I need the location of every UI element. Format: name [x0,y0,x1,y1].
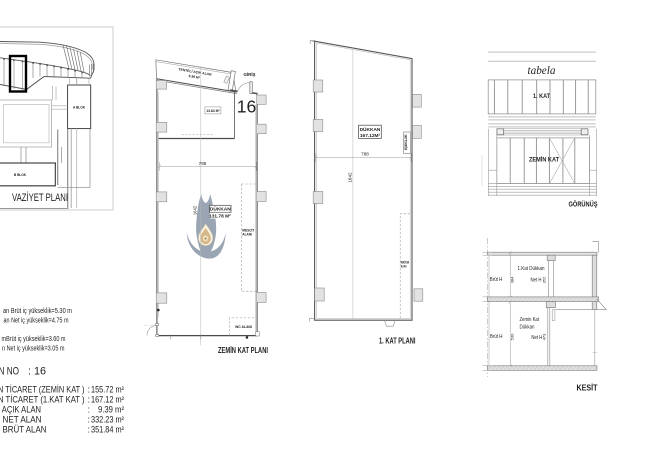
svg-text:N NO: N NO [0,366,19,378]
svg-text:ZEMİN KAT PLANI: ZEMİN KAT PLANI [218,345,268,355]
svg-text:352: 352 [542,276,547,283]
svg-text:İ AÇIK ALAN: İ AÇIK ALAN [0,405,41,415]
svg-text:788: 788 [361,152,369,157]
svg-text::: : [88,415,91,425]
svg-text:13.84 M²: 13.84 M² [206,109,220,113]
svg-text:ALANI: ALANI [401,264,407,268]
svg-text:1. KAT PLANI: 1. KAT PLANI [379,336,416,346]
svg-text:788: 788 [199,161,207,166]
svg-text:155.72 m²: 155.72 m² [91,385,124,395]
svg-text:DÜKKAN: DÜKKAN [210,206,231,213]
svg-text:167.12M²: 167.12M² [360,133,381,139]
svg-text:an Net iç yükseklik=4.75 m: an Net iç yükseklik=4.75 m [4,318,69,325]
svg-text:Brüt H: Brüt H [490,334,503,340]
svg-text::: : [88,425,91,435]
svg-text:N TİCARET (ZEMİN KAT ): N TİCARET (ZEMİN KAT ) [0,385,85,395]
svg-text:an Brüt iç yükseklik=5.30 m: an Brüt iç yükseklik=5.30 m [3,308,72,315]
svg-text:9.39 M²: 9.39 M² [188,74,201,80]
svg-text:351.84 m²: 351.84 m² [91,425,124,435]
svg-text:167.12 m²: 167.12 m² [91,395,124,405]
svg-text:DÜKKAN: DÜKKAN [360,126,381,133]
svg-text::: : [88,395,91,405]
svg-text:Net H: Net H [531,278,542,284]
svg-text:530: 530 [510,333,515,340]
svg-text:1642: 1642 [347,172,352,183]
svg-text:Zemin Kat: Zemin Kat [520,317,540,323]
svg-text::: : [88,385,91,395]
svg-text:IŞIKLIK: IŞIKLIK [404,134,408,151]
svg-text:tabela: tabela [528,65,556,77]
svg-text:9.39 m²: 9.39 m² [98,405,124,415]
svg-text:332.23 m²: 332.23 m² [91,415,124,425]
svg-text:ALANI: ALANI [242,232,252,236]
svg-text:Dükkan: Dükkan [520,325,535,331]
svg-text:131.78 M²: 131.78 M² [209,213,231,219]
svg-text:Brüt H: Brüt H [490,277,503,283]
svg-text:KESİT: KESİT [577,383,599,393]
svg-text:ZEMİN KAT: ZEMİN KAT [529,156,559,164]
svg-text:WC ALANI: WC ALANI [235,325,252,329]
svg-text:N TİCARET (1.KAT KAT ): N TİCARET (1.KAT KAT ) [0,395,85,405]
svg-text:1. KAT: 1. KAT [533,93,550,100]
svg-text:B BLOK: B BLOK [14,173,27,177]
svg-text:1.Kat Dükkan: 1.Kat Dükkan [518,266,545,272]
svg-text::: : [88,405,91,415]
svg-text:GİRİŞ: GİRİŞ [244,72,256,77]
svg-text:16: 16 [237,97,256,117]
svg-text:BRÜT ALAN: BRÜT ALAN [3,425,47,435]
svg-text:1642: 1642 [193,205,198,215]
svg-text:: 16: : 16 [28,366,46,378]
svg-text:mBrüt iç yükseklik=3.60 m: mBrüt iç yükseklik=3.60 m [2,336,66,343]
svg-text:473: 473 [542,333,547,340]
svg-text:n Net iç yükseklik=3.05 m: n Net iç yükseklik=3.05 m [2,346,65,353]
svg-text:VAZİYET PLANI: VAZİYET PLANI [12,191,68,204]
svg-text:384: 384 [510,276,515,283]
svg-text:NET ALAN: NET ALAN [3,415,42,425]
svg-text:GÖRÜNÜŞ: GÖRÜNÜŞ [569,200,598,209]
svg-text:A BLOK: A BLOK [73,106,86,110]
